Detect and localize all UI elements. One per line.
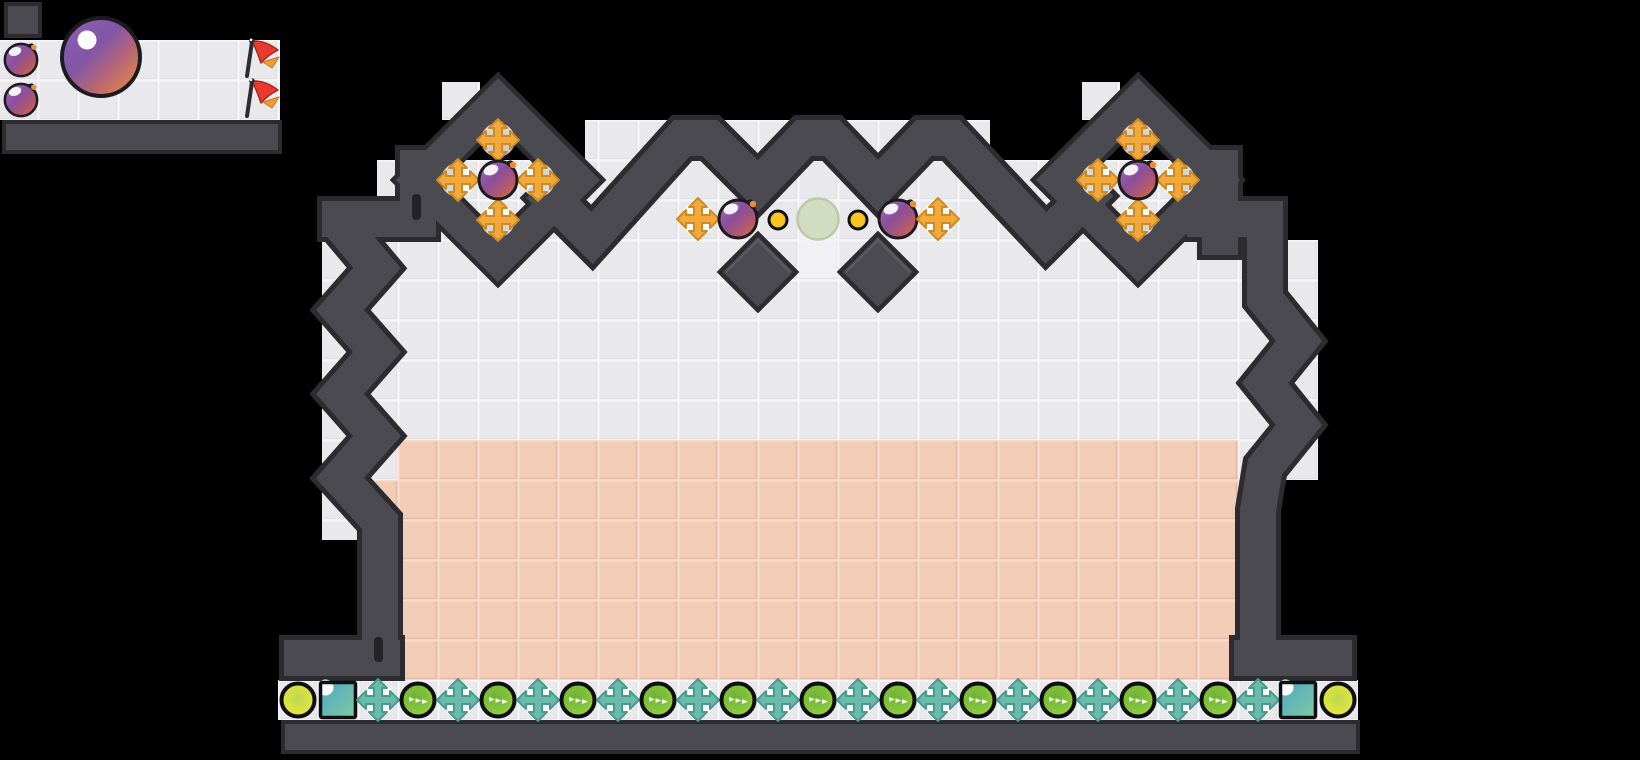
sand-floor — [358, 440, 1278, 680]
mini-wall-bar — [4, 122, 280, 152]
plum-orb[interactable] — [479, 161, 517, 199]
tray-seed-orb[interactable] — [722, 684, 755, 717]
tray-seed-orb[interactable] — [402, 684, 435, 717]
wall-notch — [412, 194, 421, 220]
plum-orb[interactable] — [5, 84, 37, 116]
plum-orb[interactable] — [879, 200, 917, 238]
empty-slot-circle — [798, 199, 839, 240]
wall-notch — [374, 637, 383, 662]
game-stage — [0, 0, 1640, 760]
pellet-dot — [849, 211, 867, 229]
plum-orb[interactable] — [1119, 161, 1157, 199]
game-canvas — [0, 0, 1640, 760]
player-ball[interactable] — [62, 18, 140, 96]
bottom-wall-bar — [283, 722, 1358, 752]
tray-seed-orb[interactable] — [482, 684, 515, 717]
mini-wall-block — [6, 4, 40, 36]
tray-seed-orb[interactable] — [1202, 684, 1235, 717]
tray-jelly-block[interactable] — [318, 680, 356, 718]
tray-seed-orb[interactable] — [1042, 684, 1075, 717]
tray-seed-orb[interactable] — [962, 684, 995, 717]
tray-jelly-block[interactable] — [1278, 680, 1316, 718]
tray-yellow-orb[interactable] — [282, 684, 315, 717]
tray-seed-orb[interactable] — [642, 684, 675, 717]
tray-seed-orb[interactable] — [882, 684, 915, 717]
tray-seed-orb[interactable] — [562, 684, 595, 717]
tray-seed-orb[interactable] — [1122, 684, 1155, 717]
plum-orb[interactable] — [5, 44, 37, 76]
tray-seed-orb[interactable] — [802, 684, 835, 717]
tray-yellow-orb[interactable] — [1322, 684, 1355, 717]
plum-orb[interactable] — [719, 200, 757, 238]
pellet-dot — [769, 211, 787, 229]
